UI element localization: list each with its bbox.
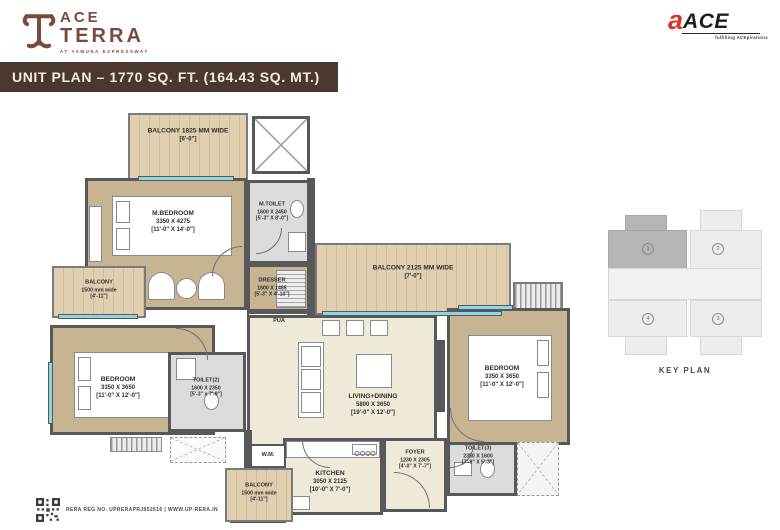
pillow — [537, 372, 549, 398]
dining-chair — [322, 320, 340, 336]
label-kitchen: KITCHEN3050 X 2125[10'-0" X 7'-0"] — [310, 470, 351, 494]
dining-chair — [370, 320, 388, 336]
lounge-chair — [148, 272, 175, 300]
ace-developer-logo: a ACE fulfilling ACEpirations — [668, 10, 768, 40]
wardrobe-master — [89, 206, 102, 262]
stove — [352, 444, 377, 455]
floor-plan: BALCONY 1825 MM WIDE[6'-0"] M.BEDROOM335… — [0, 100, 600, 530]
brand-tagline: AT YAMUNA EXPRESSWAY — [60, 49, 149, 54]
round-table — [176, 278, 197, 299]
keyplan-number-1: 1 — [642, 243, 654, 255]
pillow — [116, 201, 130, 223]
keyplan-number-3: 3 — [712, 313, 724, 325]
lounge-chair — [198, 272, 225, 300]
label-master-bedroom: M.BEDROOM3350 X 4275[11'-0" X 14'-0"] — [151, 210, 195, 234]
keyplan-core — [608, 268, 762, 300]
unit-plan-title-bar: UNIT PLAN – 1770 SQ. FT. (164.43 SQ. MT.… — [0, 62, 338, 92]
window — [48, 362, 53, 424]
brand-line1: ACE — [60, 10, 149, 26]
label-foyer: FOYER1230 X 2305[4'-0" X 7'-7"] — [399, 449, 431, 470]
label-toilet-3: TOILET(3)2350 X 1600[7'-9" X 5'-3"] — [462, 445, 494, 466]
ace-terra-logo: ACE TERRA AT YAMUNA EXPRESSWAY — [60, 10, 149, 54]
label-toilet-2: TOILET(2)1600 X 2350[5'-3" x 7'-9"] — [190, 377, 222, 398]
pillow — [78, 386, 91, 410]
keyplan-number-4: 4 — [642, 313, 654, 325]
wall-column — [437, 340, 445, 412]
entry-shaft — [517, 442, 559, 496]
sofa-cushion — [301, 346, 321, 367]
window — [322, 311, 502, 316]
ace-terra-ornament-icon — [22, 8, 56, 54]
pillow — [78, 357, 91, 381]
qr-code — [36, 498, 60, 522]
center-table — [356, 354, 392, 388]
stair-shaft-bottom — [170, 437, 226, 463]
label-living-dining: LIVING+DINING5800 X 3650[19'-0" X 12'-0"… — [349, 393, 398, 417]
pillow — [537, 340, 549, 366]
dining-chair — [346, 320, 364, 336]
lift-shaft — [252, 116, 310, 174]
rera-registration-text: RERA REG NO. UPRERAPRJ952616 | WWW.UP-RE… — [66, 507, 218, 513]
ledge-hatch-bottom — [110, 437, 162, 452]
sofa-cushion — [301, 392, 321, 413]
label-balcony-bottom: BALCONY1500 mm wide[4'-11"] — [241, 482, 276, 503]
label-balcony-center: BALCONY 2125 MM WIDE[7'-0"] — [373, 265, 454, 282]
wc-master — [290, 200, 304, 218]
shower-master — [288, 232, 306, 252]
label-master-toilet: M.TOILET1600 X 2450[5'-3" X 8'-0"] — [256, 201, 288, 222]
sofa-cushion — [301, 369, 321, 390]
balcony-top — [128, 113, 248, 180]
window — [138, 176, 234, 181]
ace-developer-name: ACE — [683, 13, 729, 32]
label-washing-machine: W.M. — [262, 452, 275, 460]
wall-column — [307, 178, 315, 315]
ace-red-a-mark: a — [668, 10, 683, 32]
label-balcony-top: BALCONY 1825 MM WIDE[6'-0"] — [148, 128, 229, 145]
brand-line2: TERRA — [60, 26, 149, 47]
label-pua: PUA — [273, 318, 285, 326]
logo-underline — [682, 33, 760, 35]
key-plan-title: KEY PLAN — [600, 366, 770, 375]
window — [458, 305, 513, 310]
key-plan: 1 2 4 3 — [600, 195, 770, 380]
window — [58, 314, 138, 319]
label-bedroom-left: BEDROOM3350 X 3650[11'-0" X 12'-0"] — [96, 376, 140, 400]
pillow — [116, 228, 130, 250]
developer-tagline: fulfilling ACEpirations — [668, 35, 768, 40]
unit-plan-title: UNIT PLAN – 1770 SQ. FT. (164.43 SQ. MT.… — [12, 69, 320, 85]
keyplan-unit-3 — [690, 300, 762, 337]
label-balcony-left: BALCONY1500 mm wide[4'-11"] — [81, 279, 116, 300]
keyplan-number-2: 2 — [712, 243, 724, 255]
keyplan-unit-2 — [690, 230, 762, 270]
label-dresser: DRESSER1600 X 1485[5'-3" X 4'-10"] — [254, 277, 289, 298]
label-bedroom-right: BEDROOM3350 X 3650[11'-0" X 12'-0"] — [480, 365, 524, 389]
